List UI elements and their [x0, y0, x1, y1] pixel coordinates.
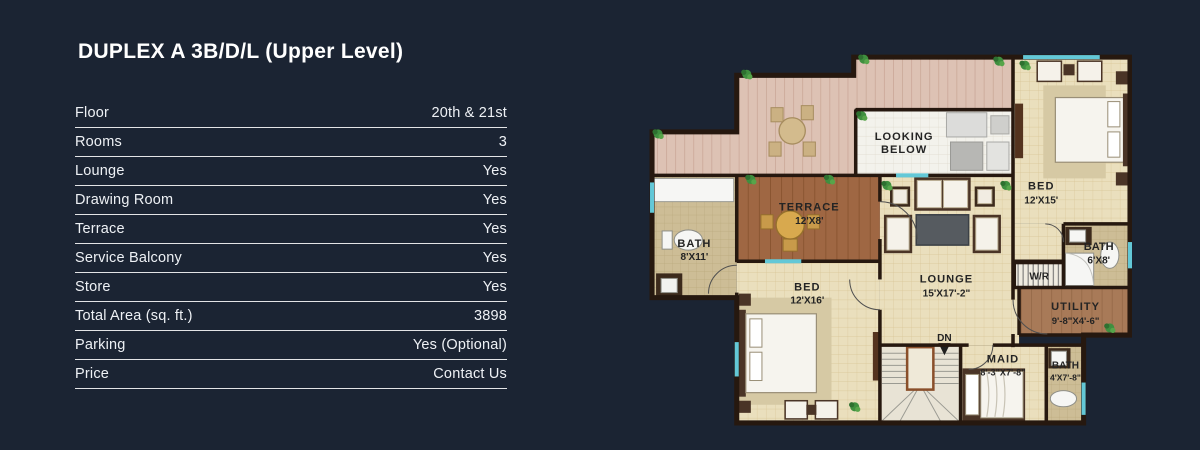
spec-row: Price Contact Us: [75, 360, 507, 389]
bathtub-icon: [654, 178, 734, 201]
spec-row: Total Area (sq. ft.) 3898: [75, 302, 507, 331]
spec-row: Floor 20th & 21st: [75, 99, 507, 128]
room-label-bed2: BED: [1028, 181, 1054, 193]
window-icon: [765, 259, 801, 263]
spec-panel: DUPLEX A 3B/D/L (Upper Level) Floor 20th…: [75, 40, 507, 389]
room-dims-bath-main: 8'X11': [681, 252, 709, 263]
window-icon: [650, 182, 654, 212]
room-dims-maid: 8'-3"X7'-8": [980, 367, 1025, 377]
room-label-wr: W/R: [1029, 271, 1049, 282]
spec-row: Store Yes: [75, 273, 507, 302]
spec-row-label: Drawing Room: [75, 192, 173, 208]
stairs-dn-label: DN: [937, 333, 952, 344]
room-dims-bed1: 12'X16': [790, 296, 824, 307]
room-label-bath2: BATH: [1084, 241, 1114, 253]
spec-row-value: Yes: [483, 192, 507, 208]
room-label-utility: UTILITY: [1051, 301, 1100, 313]
room-dims-terrace: 12'X8': [795, 216, 823, 227]
room-label-lounge: LOUNGE: [920, 273, 973, 285]
spec-row-value: Yes: [483, 279, 507, 295]
window-icon: [735, 342, 739, 376]
spec-row: Parking Yes (Optional): [75, 331, 507, 360]
floor-plan: LOOKING BELOW TERRACE 12'X8' BATH 8'X11'…: [648, 45, 1132, 427]
spec-row-value: Yes: [483, 163, 507, 179]
room-label-maid: MAID: [987, 353, 1019, 365]
spec-row-value: 20th & 21st: [431, 105, 507, 121]
spec-row-label: Total Area (sq. ft.): [75, 308, 193, 324]
page-title: DUPLEX A 3B/D/L (Upper Level): [78, 40, 507, 64]
spec-row-label: Store: [75, 279, 111, 295]
spec-row-value: Yes: [483, 250, 507, 266]
room-label-bed1: BED: [794, 282, 820, 294]
room-label-looking-below: LOOKING: [875, 131, 934, 143]
spec-row-value: Yes (Optional): [413, 337, 507, 353]
spec-row: Terrace Yes: [75, 215, 507, 244]
spec-row-value: Yes: [483, 221, 507, 237]
spec-row: Rooms 3: [75, 128, 507, 157]
window-icon: [1082, 383, 1086, 415]
room-label-terrace: TERRACE: [779, 202, 840, 214]
spec-row-label: Floor: [75, 105, 109, 121]
room-label-bath3: BATH: [1052, 360, 1079, 371]
spec-row: Service Balcony Yes: [75, 244, 507, 273]
spec-row-label: Lounge: [75, 163, 125, 179]
sofa-set-icon: [884, 177, 1001, 253]
spec-table: Floor 20th & 21st Rooms 3 Lounge Yes Dra…: [75, 99, 507, 389]
floor-plan-svg: LOOKING BELOW TERRACE 12'X8' BATH 8'X11'…: [648, 45, 1132, 427]
vanity-icon: [656, 273, 682, 297]
spec-row-value: 3: [499, 134, 507, 150]
spec-row-label: Terrace: [75, 221, 125, 237]
window-icon: [1023, 55, 1100, 59]
spec-row-value: Contact Us: [433, 366, 507, 382]
room-dims-bath2: 6'X8': [1087, 255, 1110, 266]
spec-row: Lounge Yes: [75, 157, 507, 186]
room-label-bath-main: BATH: [677, 238, 711, 250]
room-dims-utility: 9'-8"X4'-6": [1052, 316, 1100, 327]
window-icon: [896, 173, 928, 177]
spec-row-label: Parking: [75, 337, 126, 353]
room-label-looking-below-2: BELOW: [881, 144, 927, 156]
room-dims-bath3: 4'X7'-8": [1050, 373, 1081, 383]
spec-row-label: Rooms: [75, 134, 122, 150]
spec-row-label: Price: [75, 366, 109, 382]
spec-row: Drawing Room Yes: [75, 186, 507, 215]
spec-row-label: Service Balcony: [75, 250, 182, 266]
window-icon: [1128, 242, 1132, 268]
spec-row-value: 3898: [474, 308, 507, 324]
room-dims-bed2: 12'X15': [1024, 196, 1058, 207]
room-dims-lounge: 15'X17'-2": [923, 289, 971, 300]
